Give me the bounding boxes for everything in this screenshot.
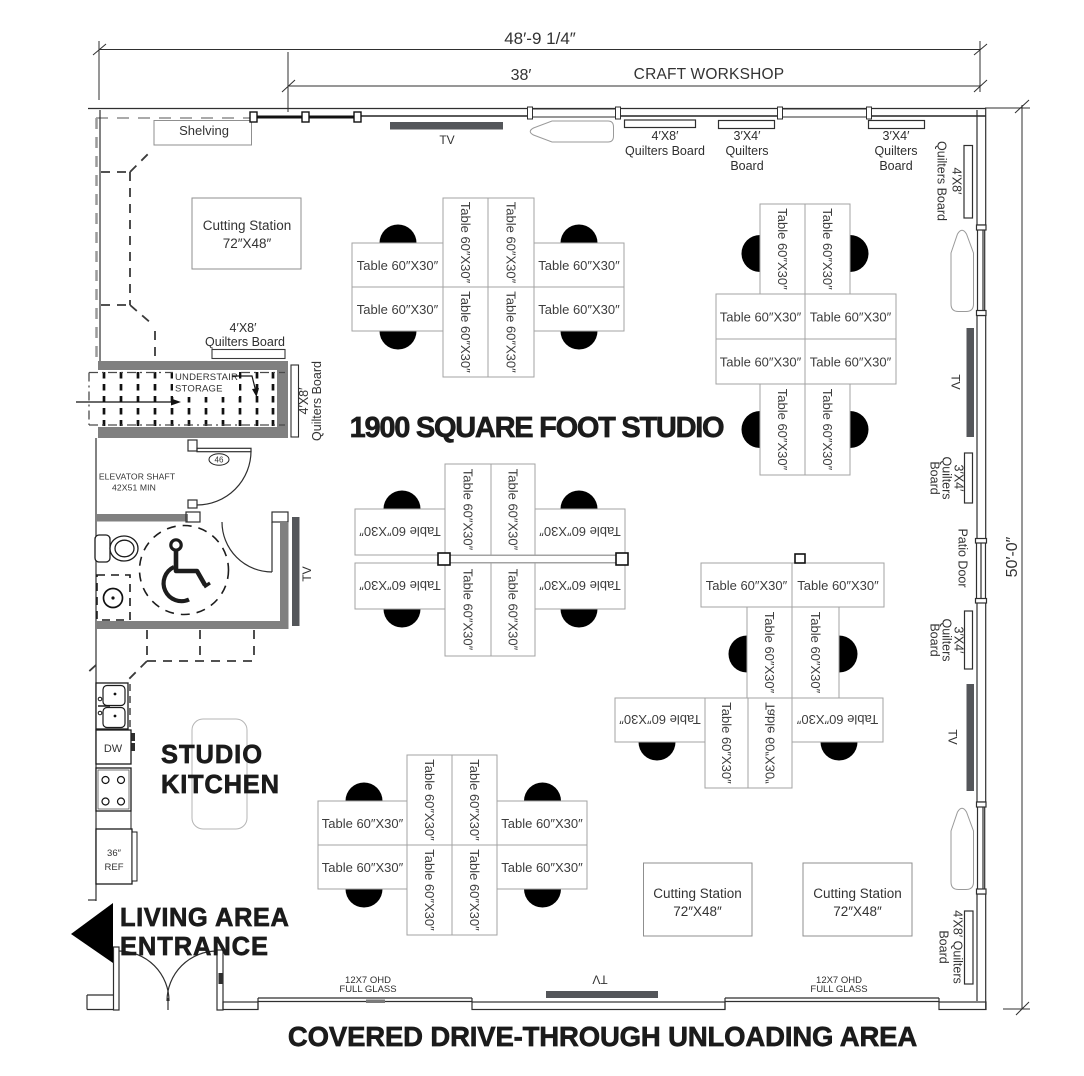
svg-text:Table 60″X30″: Table 60″X30″: [775, 389, 790, 471]
svg-text:Cutting Station: Cutting Station: [813, 886, 902, 901]
svg-text:Shelving: Shelving: [179, 123, 229, 138]
svg-text:ELEVATOR SHAFT: ELEVATOR SHAFT: [99, 472, 176, 482]
svg-text:Table 60″X30″: Table 60″X30″: [422, 849, 437, 931]
svg-text:TV: TV: [439, 133, 454, 147]
svg-text:Cutting Station: Cutting Station: [653, 886, 742, 901]
svg-text:KITCHEN: KITCHEN: [161, 771, 280, 799]
svg-text:Table 60″X30″: Table 60″X30″: [720, 355, 802, 370]
svg-text:COVERED DRIVE-THROUGH UNLOADIN: COVERED DRIVE-THROUGH UNLOADING AREA: [288, 1021, 917, 1052]
svg-text:FULL GLASS: FULL GLASS: [810, 984, 867, 995]
svg-text:Board: Board: [928, 623, 942, 656]
svg-text:Board: Board: [730, 159, 763, 173]
svg-text:Table 60″X30″: Table 60″X30″: [808, 612, 823, 694]
svg-text:Quilters Board: Quilters Board: [625, 144, 705, 158]
svg-text:TV: TV: [300, 566, 314, 581]
svg-text:Quilters: Quilters: [874, 144, 917, 158]
svg-text:REF: REF: [105, 862, 124, 873]
svg-text:LIVING AREA: LIVING AREA: [120, 904, 289, 932]
svg-text:Table 60″X30″: Table 60″X30″: [796, 712, 878, 727]
svg-text:TV: TV: [946, 729, 960, 744]
svg-text:Table 60″X30″: Table 60″X30″: [763, 702, 778, 784]
svg-text:STORAGE: STORAGE: [175, 384, 223, 395]
svg-text:Table 60″X30″: Table 60″X30″: [504, 202, 519, 284]
svg-text:Table 60″X30″: Table 60″X30″: [820, 208, 835, 290]
svg-text:72″X48″: 72″X48″: [223, 236, 272, 251]
svg-text:DW: DW: [104, 743, 123, 755]
svg-text:4′X8′ Quilters: 4′X8′ Quilters: [951, 910, 965, 983]
svg-text:Board: Board: [879, 159, 912, 173]
svg-text:Table 60″X30″: Table 60″X30″: [538, 258, 620, 273]
svg-text:Table 60″X30″: Table 60″X30″: [810, 310, 892, 325]
svg-text:Table 60″X30″: Table 60″X30″: [359, 524, 441, 539]
svg-text:Table 60″X30″: Table 60″X30″: [506, 569, 521, 651]
svg-text:36″: 36″: [107, 848, 122, 859]
svg-text:TV: TV: [949, 374, 963, 389]
svg-text:Table 60″X30″: Table 60″X30″: [820, 389, 835, 471]
svg-text:TV: TV: [592, 973, 607, 987]
svg-text:Table 60″X30″: Table 60″X30″: [775, 208, 790, 290]
svg-text:3′X4′: 3′X4′: [734, 129, 762, 143]
svg-text:Table 60″X30″: Table 60″X30″: [719, 702, 734, 784]
svg-text:Table 60″X30″: Table 60″X30″: [322, 816, 404, 831]
svg-text:Table 60″X30″: Table 60″X30″: [322, 860, 404, 875]
svg-text:Table 60″X30″: Table 60″X30″: [357, 302, 439, 317]
svg-text:Board: Board: [937, 930, 951, 963]
svg-text:1900 SQUARE FOOT STUDIO: 1900 SQUARE FOOT STUDIO: [350, 412, 724, 444]
svg-text:Table 60″X30″: Table 60″X30″: [422, 759, 437, 841]
svg-text:Table 60″X30″: Table 60″X30″: [538, 302, 620, 317]
svg-text:Quilters: Quilters: [725, 144, 768, 158]
svg-text:Table 60″X30″: Table 60″X30″: [762, 612, 777, 694]
svg-text:Table 60″X30″: Table 60″X30″: [458, 202, 473, 284]
svg-text:Table 60″X30″: Table 60″X30″: [461, 569, 476, 651]
svg-text:STUDIO: STUDIO: [161, 741, 263, 769]
svg-text:3′X4′: 3′X4′: [883, 129, 911, 143]
svg-text:Table 60″X30″: Table 60″X30″: [501, 860, 583, 875]
svg-text:Table 60″X30″: Table 60″X30″: [461, 469, 476, 551]
svg-text:Quilters Board: Quilters Board: [935, 141, 949, 221]
svg-text:Table 60″X30″: Table 60″X30″: [506, 469, 521, 551]
svg-text:Table 60″X30″: Table 60″X30″: [504, 291, 519, 373]
svg-text:Table 60″X30″: Table 60″X30″: [810, 355, 892, 370]
svg-text:Table 60″X30″: Table 60″X30″: [539, 578, 621, 593]
svg-text:Table 60″X30″: Table 60″X30″: [720, 310, 802, 325]
svg-text:Table 60″X30″: Table 60″X30″: [359, 578, 441, 593]
svg-text:4′X8′: 4′X8′: [297, 387, 311, 415]
svg-text:4′X8′: 4′X8′: [230, 321, 258, 335]
svg-text:Cutting Station: Cutting Station: [203, 218, 292, 233]
svg-text:Patio Door: Patio Door: [956, 528, 970, 587]
svg-text:Table 60″X30″: Table 60″X30″: [501, 816, 583, 831]
svg-text:Quilters Board: Quilters Board: [310, 361, 324, 441]
svg-text:Table 60″X30″: Table 60″X30″: [706, 578, 788, 593]
svg-text:38′: 38′: [511, 67, 532, 84]
svg-text:UNDERSTAIR: UNDERSTAIR: [175, 372, 238, 383]
svg-text:Table 60″X30″: Table 60″X30″: [619, 712, 701, 727]
svg-text:Table 60″X30″: Table 60″X30″: [797, 578, 879, 593]
svg-text:4′X8′: 4′X8′: [950, 168, 964, 196]
svg-text:72″X48″: 72″X48″: [833, 904, 882, 919]
svg-text:CRAFT WORKSHOP: CRAFT WORKSHOP: [634, 66, 785, 83]
svg-text:Quilters Board: Quilters Board: [205, 335, 285, 349]
svg-text:Table 60″X30″: Table 60″X30″: [458, 291, 473, 373]
svg-text:Table 60″X30″: Table 60″X30″: [467, 849, 482, 931]
svg-text:50′-0″: 50′-0″: [1004, 536, 1021, 577]
svg-text:Board: Board: [928, 461, 942, 494]
svg-text:72″X48″: 72″X48″: [673, 904, 722, 919]
svg-text:Table 60″X30″: Table 60″X30″: [539, 524, 621, 539]
svg-text:Table 60″X30″: Table 60″X30″: [357, 258, 439, 273]
svg-text:Table 60″X30″: Table 60″X30″: [467, 759, 482, 841]
svg-text:46: 46: [215, 456, 224, 465]
svg-text:42X51 MIN: 42X51 MIN: [112, 483, 156, 493]
svg-text:FULL GLASS: FULL GLASS: [339, 984, 396, 995]
svg-text:4′X8′: 4′X8′: [652, 129, 680, 143]
svg-text:ENTRANCE: ENTRANCE: [120, 933, 269, 961]
svg-text:48′-9 1/4″: 48′-9 1/4″: [504, 29, 576, 48]
